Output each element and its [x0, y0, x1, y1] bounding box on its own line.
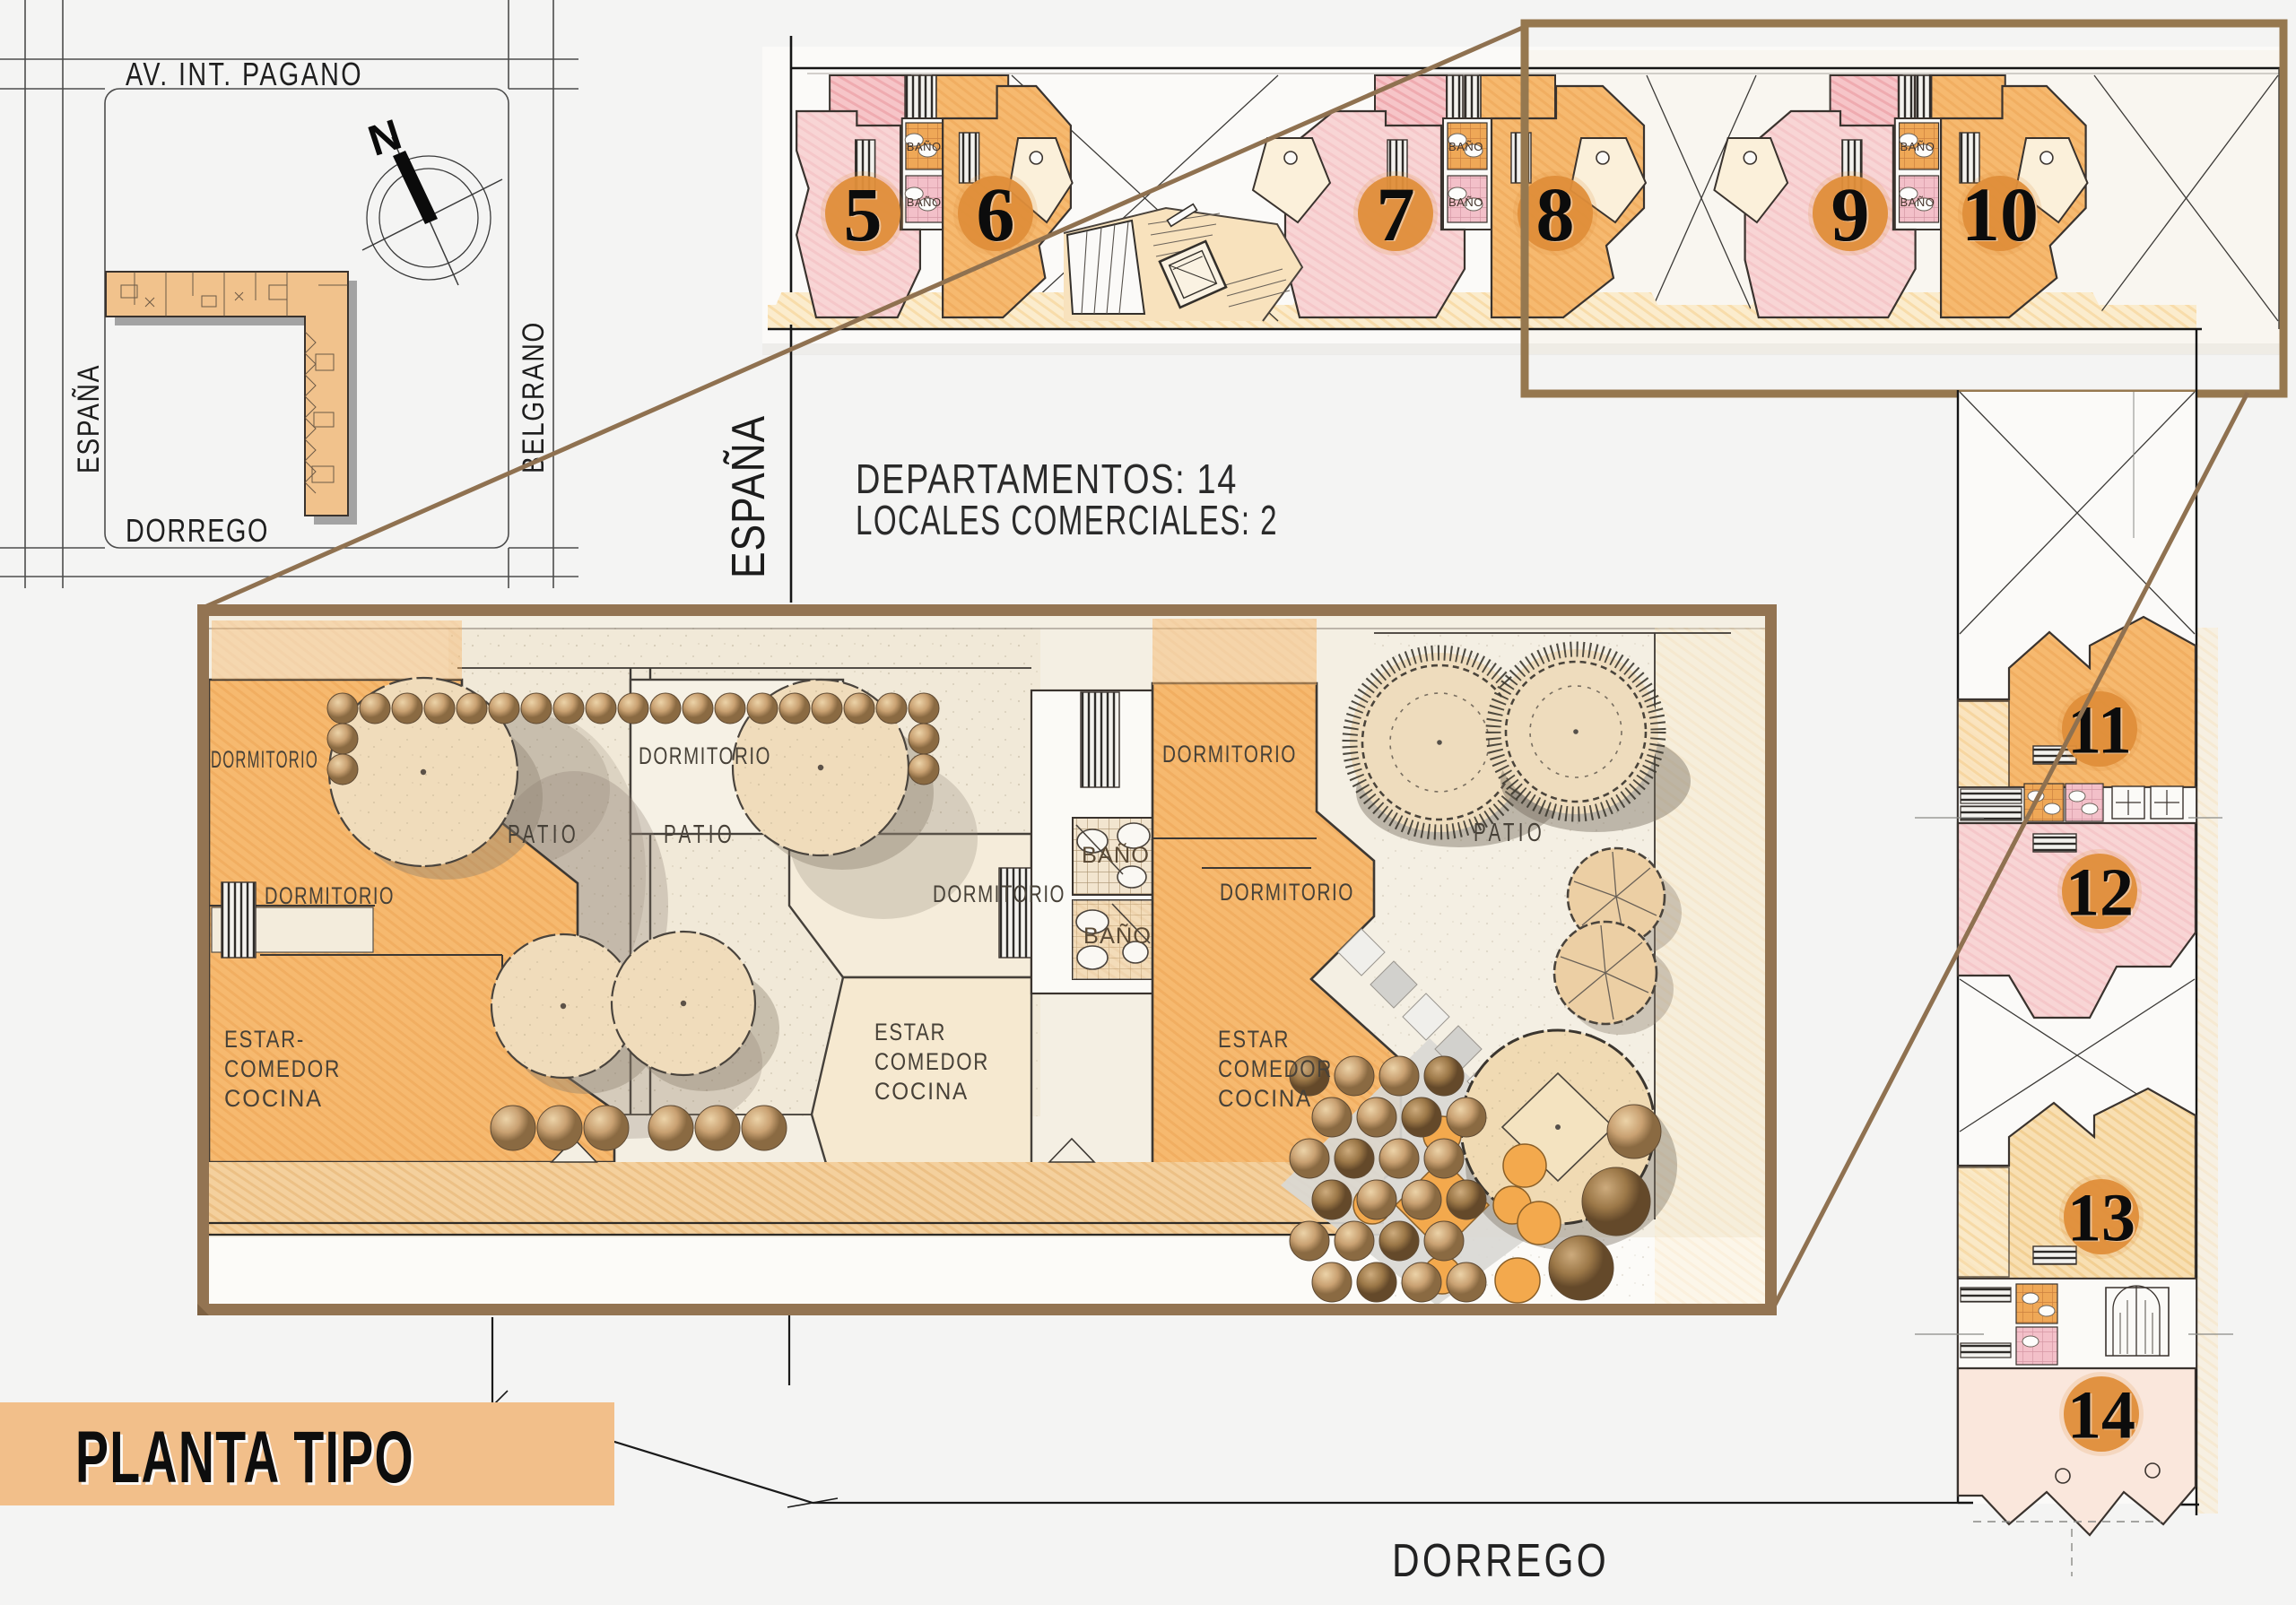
svg-text:DORMITORIO: DORMITORIO: [211, 746, 318, 773]
svg-text:ESTAR-: ESTAR-: [224, 1026, 305, 1053]
svg-text:DEPARTAMENTOS: 14: DEPARTAMENTOS: 14: [856, 455, 1238, 502]
svg-text:ESPAÑA: ESPAÑA: [723, 415, 775, 578]
svg-text:10: 10: [1961, 171, 2039, 257]
svg-text:PATIO: PATIO: [664, 820, 735, 849]
svg-text:DORREGO: DORREGO: [126, 512, 269, 549]
svg-text:DORMITORIO: DORMITORIO: [639, 742, 771, 769]
svg-text:8: 8: [1536, 171, 1575, 257]
svg-text:ESTAR: ESTAR: [1218, 1026, 1290, 1053]
svg-text:BAÑO: BAÑO: [1900, 140, 1935, 153]
svg-text:ESPAÑA: ESPAÑA: [72, 364, 106, 473]
svg-text:COCINA: COCINA: [224, 1085, 323, 1112]
svg-text:7: 7: [1377, 171, 1415, 257]
svg-text:BAÑO: BAÑO: [1448, 140, 1483, 153]
svg-text:12: 12: [2066, 855, 2134, 931]
svg-text:11: 11: [2067, 693, 2132, 768]
svg-text:13: 13: [2067, 1181, 2135, 1256]
svg-text:BAÑO: BAÑO: [1900, 195, 1935, 209]
svg-text:6: 6: [977, 171, 1015, 257]
svg-text:COMEDOR: COMEDOR: [1218, 1055, 1333, 1082]
svg-text:BAÑO: BAÑO: [907, 195, 942, 209]
svg-text:COCINA: COCINA: [1218, 1085, 1312, 1112]
svg-text:COMEDOR: COMEDOR: [874, 1048, 989, 1075]
svg-text:BAÑO: BAÑO: [1083, 923, 1152, 949]
svg-text:DORREGO: DORREGO: [1392, 1535, 1609, 1587]
svg-text:DORMITORIO: DORMITORIO: [265, 882, 395, 909]
svg-text:COMEDOR: COMEDOR: [224, 1055, 341, 1082]
svg-text:PATIO: PATIO: [1474, 819, 1545, 847]
svg-text:9: 9: [1831, 171, 1870, 257]
svg-text:LOCALES COMERCIALES: 2: LOCALES COMERCIALES: 2: [856, 497, 1278, 543]
svg-text:BELGRANO: BELGRANO: [517, 321, 551, 473]
svg-text:14: 14: [2067, 1378, 2135, 1453]
svg-text:AV. INT. PAGANO: AV. INT. PAGANO: [126, 56, 363, 92]
svg-text:DORMITORIO: DORMITORIO: [1220, 879, 1354, 906]
svg-text:DORMITORIO: DORMITORIO: [933, 881, 1065, 907]
svg-text:PATIO: PATIO: [508, 820, 579, 849]
svg-text:BAÑO: BAÑO: [907, 140, 942, 153]
svg-text:ESTAR: ESTAR: [874, 1019, 946, 1045]
svg-text:5: 5: [844, 171, 883, 257]
svg-text:PLANTA TIPO: PLANTA TIPO: [75, 1417, 414, 1498]
svg-text:BAÑO: BAÑO: [1082, 842, 1150, 868]
svg-text:DORMITORIO: DORMITORIO: [1162, 741, 1297, 768]
svg-text:COCINA: COCINA: [874, 1078, 969, 1105]
svg-text:BAÑO: BAÑO: [1448, 195, 1483, 209]
